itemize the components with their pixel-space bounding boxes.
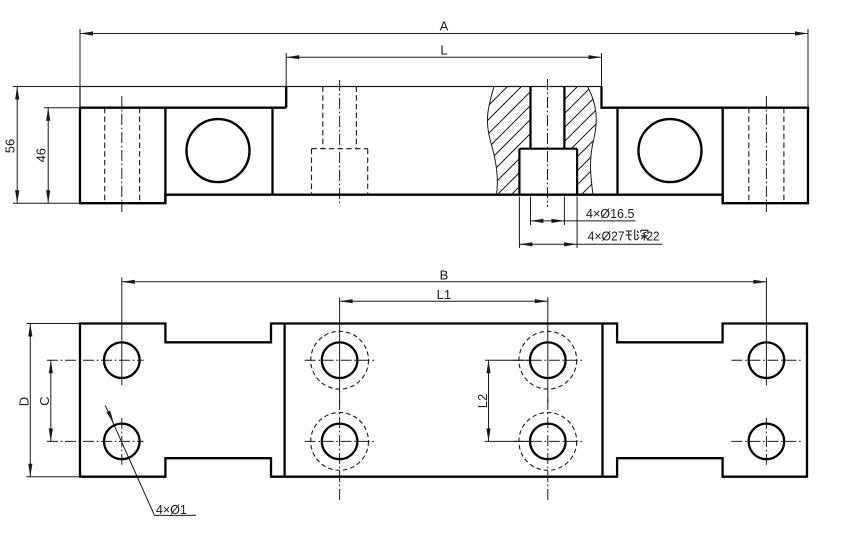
- svg-text:B: B: [440, 268, 449, 283]
- svg-text:D: D: [17, 397, 32, 406]
- svg-text:C: C: [37, 396, 52, 405]
- svg-text:46: 46: [34, 148, 49, 162]
- svg-text:A: A: [440, 19, 449, 34]
- svg-text:4×Ø1: 4×Ø1: [156, 502, 187, 517]
- svg-text:22: 22: [647, 229, 660, 244]
- svg-text:4×Ø16.5: 4×Ø16.5: [586, 206, 635, 221]
- svg-text:4×Ø27: 4×Ø27: [588, 229, 625, 244]
- svg-text:L1: L1: [437, 287, 451, 302]
- svg-text:56: 56: [3, 139, 18, 153]
- svg-text:L: L: [440, 43, 447, 58]
- svg-text:L2: L2: [475, 394, 490, 408]
